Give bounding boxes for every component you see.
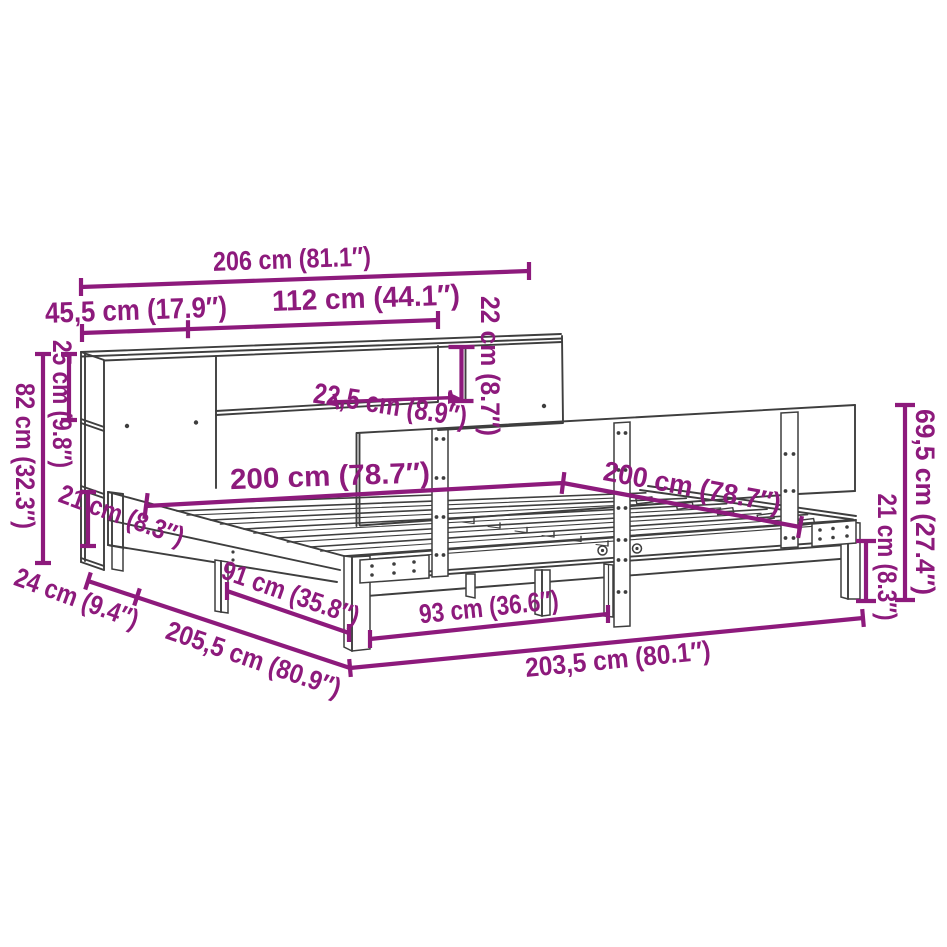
svg-text:206 cm (81.1″): 206 cm (81.1″) (212, 241, 371, 276)
svg-text:82 cm (32.3″): 82 cm (32.3″) (10, 383, 40, 529)
svg-text:45,5 cm (17.9″): 45,5 cm (17.9″) (44, 291, 227, 329)
svg-text:69,5 cm (27.4″): 69,5 cm (27.4″) (910, 409, 940, 595)
svg-text:25 cm (9.8″): 25 cm (9.8″) (47, 340, 77, 468)
svg-text:21 cm (8.3″): 21 cm (8.3″) (872, 494, 902, 621)
svg-text:22 cm (8.7″): 22 cm (8.7″) (475, 296, 505, 436)
svg-text:112 cm (44.1″): 112 cm (44.1″) (271, 279, 460, 318)
